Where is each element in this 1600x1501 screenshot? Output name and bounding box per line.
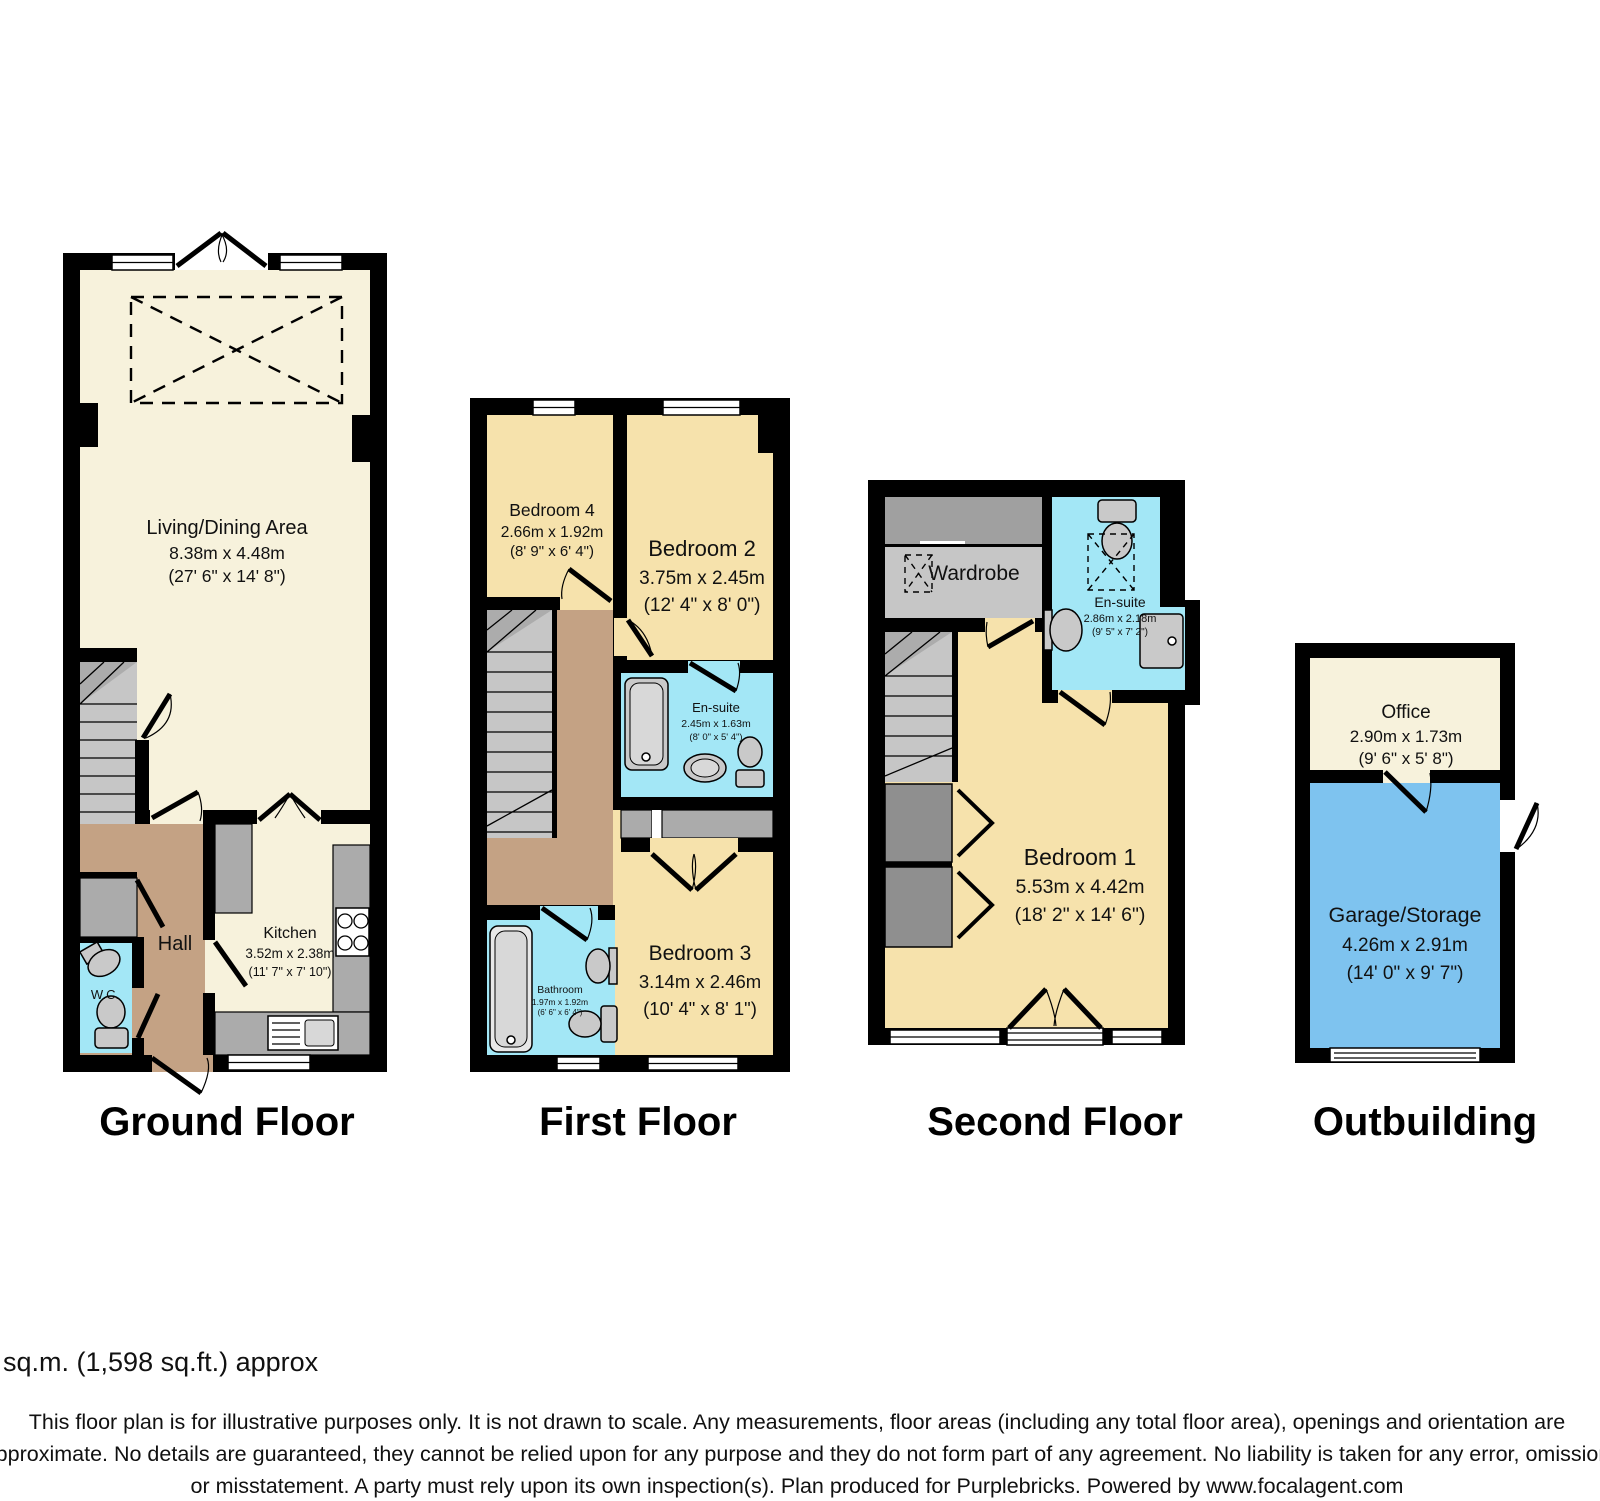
wall xyxy=(135,810,150,824)
wardrobe-back xyxy=(885,497,1042,545)
window xyxy=(557,1057,738,1070)
sink-icon xyxy=(586,948,617,984)
wall xyxy=(132,943,144,988)
ensuite-second-label: En-suite xyxy=(1094,594,1146,610)
wall xyxy=(203,824,215,940)
disclaimer-line-3: or misstatement. A party must rely upon … xyxy=(191,1474,1404,1498)
first-floor-plan: Bedroom 4 2.66m x 1.92m (8' 9" x 6' 4") … xyxy=(470,398,790,1072)
outbuilding-plan: Office 2.90m x 1.73m (9' 6" x 5' 8") Gar… xyxy=(1295,643,1538,1063)
wall xyxy=(621,797,773,810)
eaves-storage xyxy=(885,867,952,947)
bedroom4-metric: 2.66m x 1.92m xyxy=(501,524,604,541)
wall-bump xyxy=(1185,600,1200,705)
wardrobe-label: Wardrobe xyxy=(928,562,1019,585)
sink-icon xyxy=(1044,609,1082,651)
garage-label: Garage/Storage xyxy=(1329,903,1482,927)
kitchen-label: Kitchen xyxy=(263,925,316,942)
window xyxy=(228,1055,310,1070)
bedroom1-label: Bedroom 1 xyxy=(1024,844,1137,870)
sink-icon xyxy=(684,754,726,782)
bedroom1-imperial: (18' 2" x 14' 6") xyxy=(1015,904,1146,926)
sliding-door xyxy=(920,541,965,544)
wall-notch xyxy=(80,403,98,447)
wc-label: W.C. xyxy=(91,987,119,1002)
toilet-icon xyxy=(736,737,764,787)
bathroom-metric: 1.97m x 1.92m xyxy=(532,997,588,1007)
bathroom-imperial: (6' 6" x 6' 4") xyxy=(538,1008,583,1017)
wall xyxy=(1160,497,1168,607)
ground-floor-title: Ground Floor xyxy=(99,1100,355,1144)
door-opening xyxy=(650,838,738,852)
first-floor-title: First Floor xyxy=(539,1100,737,1144)
ground-floor-plan: Living/Dining Area 8.38m x 4.48m (27' 6"… xyxy=(63,233,387,1093)
floor-plan-image: Living/Dining Area 8.38m x 4.48m (27' 6"… xyxy=(0,0,1600,1501)
second-floor-plan: Wardrobe En-suite 2.86m x 2.18m (9' 5" x… xyxy=(868,480,1200,1045)
ensuite-first-imperial: (8' 0" x 5' 4") xyxy=(689,732,742,743)
wall xyxy=(487,597,560,610)
disclaimer-line-1: This floor plan is for illustrative purp… xyxy=(29,1410,1565,1434)
wall xyxy=(203,993,215,1055)
bedroom2-label: Bedroom 2 xyxy=(648,536,756,561)
ensuite-second-imperial: (9' 5" x 7' 2") xyxy=(1092,627,1148,638)
ensuite-first-metric: 2.45m x 1.63m xyxy=(681,718,751,730)
eaves-storage xyxy=(885,784,952,862)
hob-icon xyxy=(336,908,369,956)
bedroom2-metric: 3.75m x 2.45m xyxy=(639,568,765,589)
bath-icon xyxy=(625,678,668,770)
wall xyxy=(1042,497,1052,690)
door-opening xyxy=(1500,800,1515,852)
total-floor-area: Total floor area 148.5 sq.m. (1,598 sq.f… xyxy=(0,1347,319,1377)
wall xyxy=(80,937,144,943)
kitchen-counter xyxy=(215,824,252,913)
office-label: Office xyxy=(1381,702,1430,723)
cupboard xyxy=(80,878,137,937)
outbuilding-title: Outbuilding xyxy=(1313,1100,1537,1144)
ensuite-first-label: En-suite xyxy=(692,700,740,715)
living-room-metric: 8.38m x 4.48m xyxy=(169,543,285,563)
garage-imperial: (14' 0" x 9' 7") xyxy=(1347,963,1464,984)
cupboard-divider xyxy=(652,810,662,838)
bathroom-label: Bathroom xyxy=(537,984,583,996)
stairs xyxy=(885,632,958,782)
wall-notch xyxy=(758,415,773,453)
wall-notch xyxy=(352,415,370,462)
living-room-label: Living/Dining Area xyxy=(146,517,308,539)
wall xyxy=(203,810,257,824)
second-floor-title: Second Floor xyxy=(927,1100,1183,1144)
bedroom3-metric: 3.14m x 2.46m xyxy=(639,971,761,992)
floor-plan-svg: Living/Dining Area 8.38m x 4.48m (27' 6"… xyxy=(0,0,1600,1501)
garage-metric: 4.26m x 2.91m xyxy=(1342,935,1468,956)
kitchen-imperial: (11' 7" x 7' 10") xyxy=(249,965,332,979)
cupboard xyxy=(621,810,652,838)
room-landing xyxy=(557,610,613,920)
hall-label: Hall xyxy=(158,933,192,955)
bedroom4-label: Bedroom 4 xyxy=(509,500,595,520)
cupboard xyxy=(662,810,773,838)
office-metric: 2.90m x 1.73m xyxy=(1350,727,1462,746)
wall xyxy=(613,660,621,810)
living-room-imperial: (27' 6" x 14' 8") xyxy=(168,566,285,586)
garage-door xyxy=(1330,1048,1480,1062)
bath-icon xyxy=(490,926,532,1052)
kitchen-metric: 3.52m x 2.38m xyxy=(245,946,334,961)
wall xyxy=(321,810,370,824)
window xyxy=(890,1028,1162,1045)
bedroom2-imperial: (12' 4" x 8' 0") xyxy=(644,595,761,616)
bedroom4-imperial: (8' 9" x 6' 4") xyxy=(510,543,594,560)
bedroom3-imperial: (10' 4" x 8' 1") xyxy=(643,998,757,1019)
wall xyxy=(80,872,137,878)
side-door xyxy=(1516,803,1538,849)
ensuite-second-metric: 2.86m x 2.18m xyxy=(1084,613,1157,625)
wardrobe-track xyxy=(885,544,1042,547)
door-opening xyxy=(614,618,627,656)
kitchen-sink-icon xyxy=(268,1016,338,1050)
wall xyxy=(132,1038,144,1055)
bedroom1-metric: 5.53m x 4.42m xyxy=(1016,876,1145,898)
office-imperial: (9' 6" x 5' 8") xyxy=(1358,749,1453,768)
disclaimer-line-2: approximate. No details are guaranteed, … xyxy=(0,1442,1600,1466)
stairs xyxy=(487,610,557,838)
bedroom3-label: Bedroom 3 xyxy=(649,942,752,965)
